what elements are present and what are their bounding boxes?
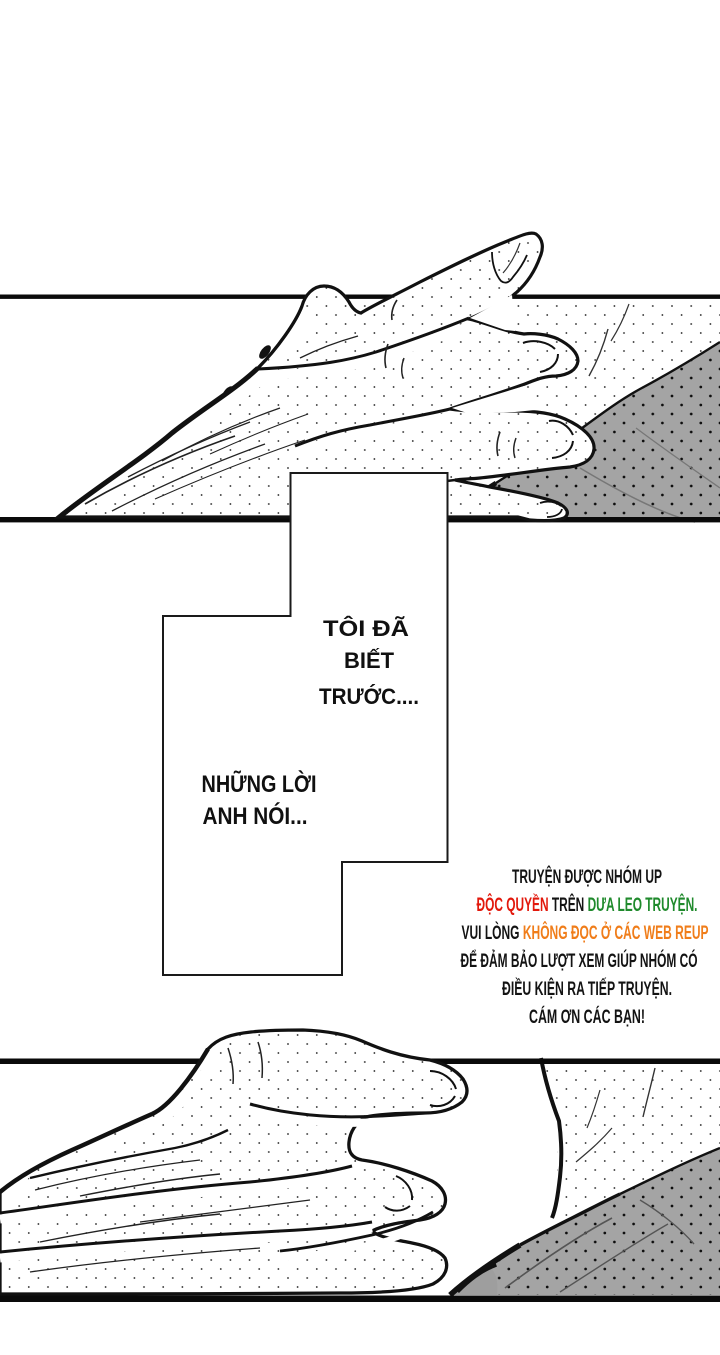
svg-text:NHỮNG LỜI: NHỮNG LỜI — [202, 770, 317, 798]
svg-text:ANH NÓI...: ANH NÓI... — [203, 802, 308, 830]
svg-text:BIẾT: BIẾT — [344, 648, 395, 673]
svg-text:TÔI ĐÃ: TÔI ĐÃ — [323, 616, 409, 641]
svg-text:VUI LÒNG KHÔNG ĐỌC Ở CÁC WEB R: VUI LÒNG KHÔNG ĐỌC Ở CÁC WEB REUP — [462, 922, 709, 944]
svg-text:ĐỘC QUYỀN TRÊN DƯA LEO TRUYỆN.: ĐỘC QUYỀN TRÊN DƯA LEO TRUYỆN. — [477, 894, 698, 916]
svg-text:CÁM ƠN CÁC BẠN!: CÁM ƠN CÁC BẠN! — [529, 1006, 645, 1028]
svg-text:ĐỂ ĐẢM BẢO LƯỢT XEM GIÚP NHÓM: ĐỂ ĐẢM BẢO LƯỢT XEM GIÚP NHÓM CÓ — [461, 950, 698, 972]
svg-text:TRƯỚC....: TRƯỚC.... — [319, 684, 419, 709]
svg-text:ĐIỀU KIỆN RA TIẾP TRUYỆN.: ĐIỀU KIỆN RA TIẾP TRUYỆN. — [502, 978, 672, 1000]
svg-text:TRUYỆN ĐƯỢC NHÓM UP: TRUYỆN ĐƯỢC NHÓM UP — [512, 866, 662, 888]
